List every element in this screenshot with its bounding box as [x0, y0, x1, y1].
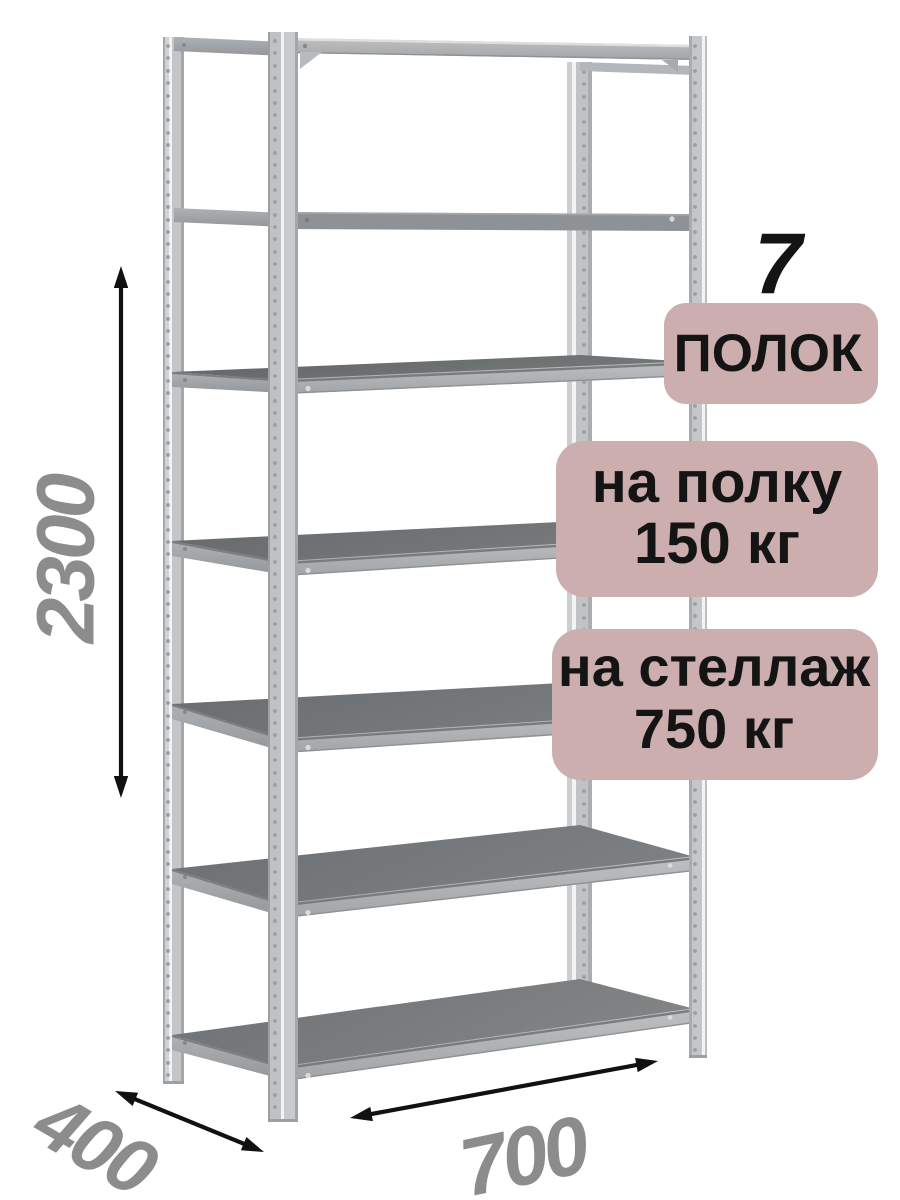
svg-text:2300: 2300 — [21, 473, 112, 645]
svg-text:ПОЛОК: ПОЛОК — [674, 324, 863, 383]
svg-text:на стеллаж: на стеллаж — [558, 635, 872, 698]
svg-text:150 кг: 150 кг — [634, 511, 800, 576]
svg-text:на полку: на полку — [592, 450, 843, 515]
svg-text:7: 7 — [754, 216, 806, 312]
svg-text:750 кг: 750 кг — [634, 697, 794, 760]
